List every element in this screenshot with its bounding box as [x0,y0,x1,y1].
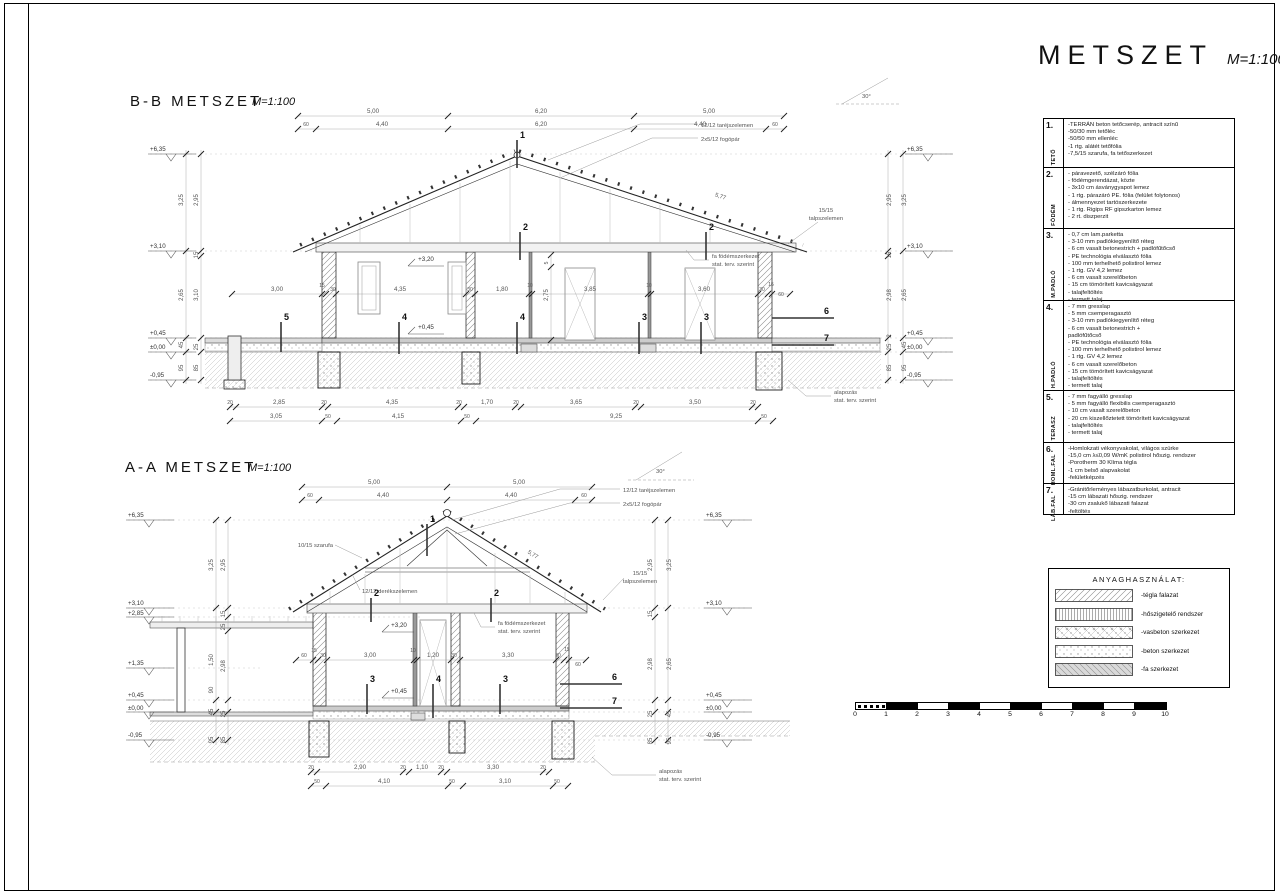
note-label: stat. terv. szerint [834,398,876,404]
aa-ceiling-slab [307,604,587,613]
slope-length-label: 5,77 [526,550,539,561]
dim-label: 20 [750,400,756,406]
dim-label: 3,85 [584,286,597,293]
dim-label: 20 [438,765,444,771]
note-number: 6. [1046,444,1053,454]
section-scale: M=1:100 [248,462,292,474]
notes-row: 2.FÖDÉM - páravezető, szélzáró fólia - f… [1044,168,1234,229]
dim-label: 30 [330,287,336,293]
vdim-label: 2,65 [179,289,185,301]
scale-number: 9 [1132,711,1136,718]
vdim-label: 3,25 [209,559,215,571]
vdim-label: 15 [887,251,893,258]
legend-item: -vasbeton szerkezet [1055,626,1223,639]
callout-label: talpszelemen [809,216,843,222]
vdim-label: 95 [902,364,908,371]
dim-label: 60 [772,122,778,128]
vdim-label: 25 [194,343,200,350]
bb-door [565,268,595,340]
roof-angle-label: 30° [656,469,665,475]
dim-label: 2,90 [354,764,367,771]
level-label: ±0,00 [128,705,144,712]
dim-label: 15 [311,648,317,654]
scale-number: 4 [977,711,981,718]
dim-label: 20 [308,765,314,771]
legend-label: -hőszigetelő rendszer [1141,611,1203,618]
vdim-label: 2,98 [221,660,227,672]
material-legend: ANYAGHASZNÁLAT: -tégla falazat -hősziget… [1048,568,1230,688]
scale-number: 8 [1101,711,1105,718]
insulation-hatch-swatch [1055,608,1133,621]
vdim-label: 85 [648,737,654,744]
dim-label: 30 [467,287,473,293]
legend-item: -beton szerkezet [1055,645,1223,658]
marker-label: 4 [436,674,441,684]
vdim-label: 45 [179,341,185,348]
legend-title: ANYAGHASZNÁLAT: [1055,575,1223,584]
dim-label: 4,10 [378,778,391,785]
marker-label: 2 [523,222,528,232]
scale-number: 6 [1039,711,1043,718]
dim-label: 15 [564,647,570,653]
scale-number: 3 [946,711,950,718]
bb-door [685,268,715,340]
marker-label: 3 [704,312,709,322]
scale-number: 1 [884,711,888,718]
note-lines: - 7 mm fagyálló gresslap - 5 mm fagyálló… [1064,391,1234,442]
level-label: -0,95 [128,732,143,739]
aa-vchain-left: 3,25 1,50 90 45 95 2,95 15 25 2,98 25 85 [209,517,231,745]
legend-item: -hőszigetelő rendszer [1055,608,1223,621]
level-label: +3,20 [391,622,407,629]
aa-collar-beam [365,568,530,572]
bb-inner-vdims: 5 2,75 [544,252,554,350]
note-label: stat. terv. szerint [498,629,540,635]
level-label: +3,10 [907,243,923,250]
vdim-label: 2,95 [887,194,893,206]
note-number: 3. [1046,230,1053,240]
vdim-label: 45 [209,708,215,715]
vdim-label: 45 [902,341,908,348]
dim-label: 3,10 [499,778,512,785]
dim-label: 30 [555,653,561,659]
bb-bottom-dimensions: 20 2,85 20 4,35 20 1,70 20 3,65 20 3,50 … [227,399,776,424]
callout-label: 2x5/12 fogópár [701,137,740,143]
dim-label: 3,00 [364,652,377,659]
dim-label: 3,30 [502,652,515,659]
vdim-label: 5 [544,261,550,264]
dim-label: 20 [400,765,406,771]
dim-label: 3,50 [689,399,702,406]
bb-inner-levels: +3,20 +0,45 [408,256,444,334]
level-label: -0,95 [150,372,165,379]
marker-label: 2 [709,222,714,232]
aa-levels-left: +6,35 +3,10 +2,85 +1,35 +0,45 ±0,00 -0,9… [126,512,174,747]
note-number: 1. [1046,120,1053,130]
bb-window [448,262,466,314]
vdim-label: 25 [221,623,227,630]
scale-segment [918,703,949,709]
aa-top-dimensions: 5,00 5,00 60 4,40 4,40 60 [299,479,595,503]
aa-canopy [150,616,313,712]
vdim-label: 85 [221,736,227,743]
dim-label: 1,70 [481,399,494,406]
vdim-label: 3,10 [194,289,200,301]
dim-label: 20 [321,400,327,406]
marker-label: 6 [612,672,617,682]
note-number: 2. [1046,169,1053,179]
marker-label: 5 [284,312,289,322]
dim-label: 4,40 [376,121,389,128]
vdim-label: 15 [194,251,200,258]
section-label: A-A METSZET [125,459,256,476]
note-label: stat. terv. szerint [712,262,754,268]
wood-hatch-swatch [1055,663,1133,676]
vdim-label: 45 [667,710,673,717]
note-lines: -Homlokzati vékonyvakolat, világos szürk… [1064,443,1234,483]
reinforced-concrete-swatch [1055,626,1133,639]
note-category: TETŐ [1051,149,1057,165]
scale-segment [856,703,887,709]
drawing-sheet: METSZET M=1:100 B-B METSZET M=1:100 [0,0,1280,895]
dim-label: 50 [449,779,455,785]
dim-label: 2,85 [273,399,286,406]
bb-roof [293,151,807,252]
dim-label: 60 [307,493,313,499]
level-label: +1,35 [128,660,144,667]
note-category: H.PADLÓ [1051,361,1057,388]
scale-segment [1104,703,1135,709]
dim-label: 60 [778,292,784,298]
dim-label: 4,35 [386,399,399,406]
vdim-label: 95 [209,736,215,743]
slope-length-label: 5,77 [714,192,727,201]
dim-label: 6,20 [535,108,548,115]
vdim-label: 15 [648,610,654,617]
vdim-label: 95 [667,737,673,744]
callout-label: talpszelemen [623,579,657,585]
vdim-label: 3,25 [667,559,673,571]
aa-bottom-dimensions: 20 2,90 20 1,10 20 3,30 20 50 4,10 50 3,… [308,764,571,789]
scale-segment [980,703,1011,709]
legend-label: -tégla falazat [1141,592,1178,599]
level-label: +6,35 [706,512,722,519]
vdim-label: 15 [221,610,227,617]
aa-vchain-right: 3,25 2,65 45 95 2,95 15 2,98 25 85 [648,517,673,745]
dim-label: 15 [319,283,325,289]
roof-angle-label: 30° [862,94,871,100]
note-lines: - 0,7 cm lam.parketta - 3-10 mm padlókie… [1064,229,1234,300]
scale-segment [887,703,918,709]
dim-label: 1,10 [416,764,429,771]
vdim-label: 95 [179,364,185,371]
level-label: ±0,00 [150,344,166,351]
dim-label: 4,15 [392,413,405,420]
aa-ground [150,721,790,762]
marker-label: 4 [520,312,525,322]
marker-label: 6 [824,306,829,316]
dim-label: 30 [320,653,326,659]
layer-notes-table: 1.TETŐ -TERRÁN beton tetőcserép, antraci… [1043,118,1235,515]
level-label: +6,35 [128,512,144,519]
vdim-label: 2,65 [667,658,673,670]
level-label: ±0,00 [706,705,722,712]
bb-vchain-right: 3,25 2,65 45 95 2,95 15 2,98 2 25 85 [885,150,908,384]
note-label: fa födémszerkezet [498,621,546,627]
note-label: stat. terv. szerint [659,777,701,783]
notes-row: 3.M.PADLÓ - 0,7 cm lam.parketta - 3-10 m… [1044,229,1234,301]
callout-label: 15/15 [633,571,648,577]
level-label: ±0,00 [907,344,923,351]
bb-terrace-pillar [228,336,241,380]
dim-label: 10 [646,283,652,289]
vdim-label: 2,95 [221,559,227,571]
scale-segment [1135,703,1166,709]
dim-label: 10 [527,283,533,289]
legend-item: -fa szerkezet [1055,663,1223,676]
scale-segment [1042,703,1073,709]
aa-levels-right: +6,35 +3,10 +0,45 ±0,00 -0,95 [704,512,752,747]
dim-label: 5,00 [368,479,381,486]
marker-label: 7 [612,696,617,706]
level-label: +3,20 [418,256,434,263]
scale-bar: 0 1 2 3 4 5 6 7 8 9 10 [852,699,1172,725]
vdim-label: 2,95 [648,559,654,571]
dim-label: 50 [761,414,767,420]
level-label: +3,10 [706,600,722,607]
note-category: TERASZ [1051,416,1057,440]
marker-label: 2 [374,588,379,598]
callout-label: 12/12 taréjszelemen [701,123,753,129]
level-label: +0,45 [706,692,722,699]
dim-label: 20 [540,765,546,771]
legend-label: -fa szerkezet [1141,666,1178,673]
dim-label: 60 [575,662,581,668]
marker-label: 3 [370,674,375,684]
aa-roof-callouts: 12/12 taréjszelemen 2x5/12 fogópár 10/15… [298,452,694,600]
notes-row: 7.LÁB.FAL -Gránitőrleményes lábazatburko… [1044,484,1234,514]
dim-label: 60 [303,122,309,128]
section-scale: M=1:100 [252,96,296,108]
note-label: alapozás [659,769,682,775]
note-category: HOML.FAL [1051,454,1057,485]
dim-label: 1,20 [427,652,440,659]
vdim-label: 2,75 [544,289,550,301]
note-number: 7. [1046,485,1053,495]
section-drawings: B-B METSZET M=1:100 [0,0,1035,812]
legend-label: -vasbeton szerkezet [1141,629,1199,636]
bb-window [358,262,380,314]
dim-label: 50 [325,414,331,420]
note-category: LÁB.FAL [1051,495,1057,521]
bb-ceiling-slab [316,243,796,252]
dim-label: 9,25 [610,413,623,420]
scale-number: 7 [1070,711,1074,718]
marker-label: 2 [494,588,499,598]
level-label: -0,95 [706,732,721,739]
note-label: alapozás [834,390,857,396]
dim-label: 4,40 [377,492,390,499]
vdim-label: 85 [887,364,893,371]
dim-label: 5,00 [703,108,716,115]
scale-number: 2 [915,711,919,718]
level-label: +2,85 [128,610,144,617]
note-lines: - 7 mm gresslap - 5 mm csemperagasztó - … [1064,301,1234,390]
dim-label: 15 [768,282,774,288]
legend-label: -beton szerkezet [1141,648,1189,655]
dim-label: 6,20 [535,121,548,128]
dim-label: 3,00 [271,286,284,293]
level-label: +0,45 [150,330,166,337]
dim-label: 3,60 [698,286,711,293]
marker-label: 1 [520,130,525,140]
scale-number: 5 [1008,711,1012,718]
level-label: +0,45 [907,330,923,337]
dim-label: 10 [410,648,416,654]
dim-label: 5,00 [367,108,380,115]
dim-label: 20 [227,400,233,406]
dim-label: 30 [759,287,765,293]
dim-label: 20 [633,400,639,406]
note-number: 5. [1046,392,1053,402]
note-lines: - páravezető, szélzáró fólia - födémgere… [1064,168,1234,228]
callout-label: 2x5/12 fogópár [623,502,662,508]
scale-number: 0 [853,711,857,718]
vdim-label: 1,50 [209,654,215,666]
dim-label: 50 [314,779,320,785]
section-label: B-B METSZET [130,93,262,110]
scale-segment [1073,703,1104,709]
callout-label: 12/12 derékszelemen [362,589,417,595]
notes-row: 5.TERASZ - 7 mm fagyálló gresslap - 5 mm… [1044,391,1234,443]
sheet-title: METSZET M=1:100 [1038,40,1280,71]
vdim-label: 3,25 [902,194,908,206]
dim-label: 5,00 [513,479,526,486]
section-aa: A-A METSZET M=1:100 [125,452,790,789]
aa-roof [289,510,605,613]
vdim-label: 3,25 [179,194,185,206]
dim-label: 1,80 [496,286,509,293]
vdim-label: 2,95 [194,194,200,206]
marker-label: 7 [824,333,829,343]
vdim-label: 2,98 [648,658,654,670]
level-label: +0,45 [418,324,434,331]
callout-label: 10/15 szarufa [298,543,334,549]
bb-levels-right: +6,35 +3,10 +0,45 ±0,00 -0,95 [905,146,953,387]
dim-label: 3,30 [487,764,500,771]
vdim-label: 2,65 [902,289,908,301]
level-label: +6,35 [907,146,923,153]
legend-item: -tégla falazat [1055,589,1223,602]
level-label: +3,10 [150,243,166,250]
level-label: +0,45 [391,688,407,695]
dim-label: 3,05 [270,413,283,420]
dim-label: 4,40 [505,492,518,499]
level-label: -0,95 [907,372,922,379]
concrete-dots-swatch [1055,645,1133,658]
level-label: +0,45 [128,692,144,699]
marker-label: 3 [503,674,508,684]
callout-label: 12/12 taréjszelemen [623,488,675,494]
dim-label: 60 [301,653,307,659]
dim-label: 50 [464,414,470,420]
marker-label: 1 [430,514,435,524]
bb-roof-struts [360,161,760,243]
aa-canopy-pillar [177,628,185,712]
bb-roof-callouts: 12/12 taréjszelemen 2x5/12 fogópár 5,77 … [548,78,900,244]
dim-label: 20 [456,400,462,406]
callout-label: 15/15 [819,208,834,214]
aa-ridge [444,510,451,517]
bb-vchain-left: 3,25 2,65 45 95 2,95 15 3,10 25 85 [179,150,204,384]
dim-label: 3,65 [570,399,583,406]
note-category: M.PADLÓ [1051,270,1057,298]
scale-segment [949,703,980,709]
level-label: +6,35 [150,146,166,153]
notes-row: 1.TETŐ -TERRÁN beton tetőcserép, antraci… [1044,119,1234,168]
vdim-label: 90 [209,686,215,693]
vdim-label: 2,98 [887,289,893,301]
note-category: FÖDÉM [1051,204,1057,226]
section-bb: B-B METSZET M=1:100 [130,78,955,424]
dim-label: 4,35 [394,286,407,293]
note-number: 4. [1046,302,1053,312]
marker-label: 3 [642,312,647,322]
scale-bar-segments [855,702,1167,710]
scale-number: 10 [1161,711,1169,718]
vdim-label: 25 [221,710,227,717]
dim-label: 20 [513,400,519,406]
bb-levels-left: +6,35 +3,10 +0,45 ±0,00 -0,95 [148,146,196,387]
notes-row: 4.H.PADLÓ - 7 mm gresslap - 5 mm csemper… [1044,301,1234,391]
brick-hatch-swatch [1055,589,1133,602]
dim-label: 30 [451,653,457,659]
dim-label: 50 [554,779,560,785]
scale-segment [1011,703,1042,709]
title-scale: M=1:100 [1227,51,1280,68]
title-text: METSZET [1038,40,1213,71]
notes-row: 6.HOML.FAL -Homlokzati vékonyvakolat, vi… [1044,443,1234,484]
marker-label: 4 [402,312,407,322]
vdim-label: 25 [648,710,654,717]
level-label: +3,10 [128,600,144,607]
dim-label: 60 [581,493,587,499]
vdim-label: 25 [887,343,893,350]
note-lines: -TERRÁN beton tetőcserép, antracit színű… [1064,119,1234,167]
vdim-label: 85 [194,364,200,371]
note-lines: -Gránitőrleményes lábazatburkolat, antra… [1064,484,1234,514]
note-label: fa födémszerkezet [712,254,760,260]
